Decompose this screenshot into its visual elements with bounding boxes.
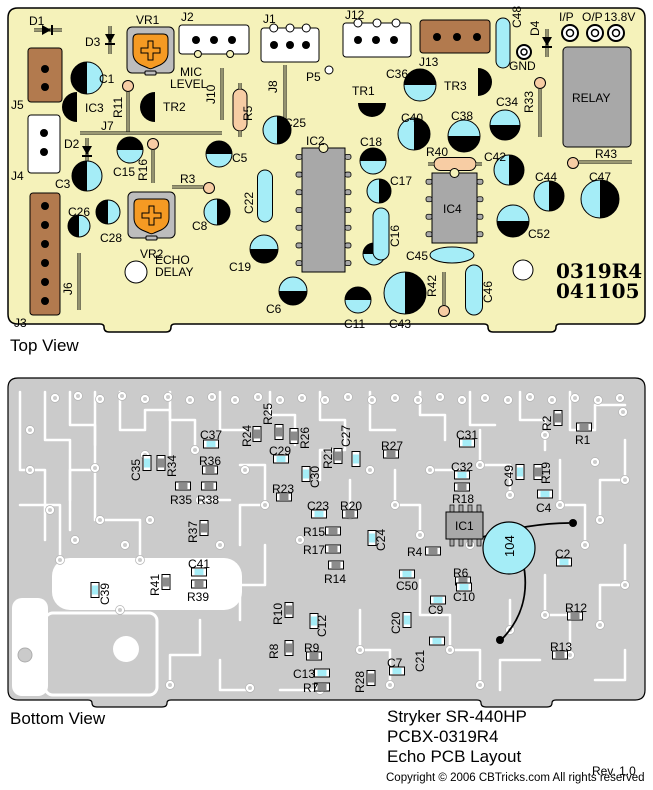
pad-hole xyxy=(278,398,282,402)
label-C39: C39 xyxy=(98,583,112,605)
label-P5: P5 xyxy=(306,70,321,84)
ic-pin xyxy=(477,214,483,219)
pad-hole xyxy=(120,394,124,398)
label-C38: C38 xyxy=(451,109,473,123)
pad xyxy=(146,516,155,525)
pad xyxy=(416,531,425,540)
label-R17: R17 xyxy=(303,543,325,557)
ic-pin xyxy=(345,261,351,266)
capacitor-band xyxy=(458,472,467,478)
trace-channel xyxy=(595,650,625,680)
resistor-band xyxy=(318,684,327,690)
pad-hole xyxy=(623,583,627,587)
pad-hole xyxy=(138,558,142,562)
bottom-component-C23: C23 xyxy=(307,499,329,518)
trace-channel xyxy=(420,580,480,685)
pad xyxy=(216,541,225,550)
capacitor-band xyxy=(517,468,523,477)
label-R37: R37 xyxy=(186,521,200,543)
pad-hole xyxy=(218,543,222,547)
part-body xyxy=(430,637,445,645)
trimmer-tab xyxy=(146,236,157,240)
top-component-hole xyxy=(513,260,533,280)
pad-hole xyxy=(478,463,482,467)
label-C12: C12 xyxy=(315,615,329,637)
bottom-component-R4: R4 xyxy=(407,545,441,559)
label-C15: C15 xyxy=(113,165,135,179)
bottom-component-R17: R17 xyxy=(303,543,341,557)
part-body xyxy=(455,471,470,479)
pad xyxy=(386,681,395,690)
part-body xyxy=(192,568,207,576)
footer-copyright: Copyright © 2006 CBTricks.com All rights… xyxy=(386,772,645,784)
pad-hole xyxy=(358,648,362,652)
part-body xyxy=(277,493,292,501)
label-C29: C29 xyxy=(269,444,291,458)
pad-hole xyxy=(550,398,554,402)
capacitor-band xyxy=(318,670,327,676)
label-C3: C3 xyxy=(55,177,71,191)
label-C17: C17 xyxy=(390,174,412,188)
bottom-component-R38: R38 xyxy=(197,482,219,507)
trace-channel xyxy=(520,392,545,450)
label-R11: R11 xyxy=(111,97,125,118)
pad xyxy=(74,392,83,401)
bottom-component-R28: R28 xyxy=(353,671,375,694)
label-C34: C34 xyxy=(496,95,518,109)
pad-hole xyxy=(618,396,622,400)
bottom-component-R14: R14 xyxy=(324,561,346,586)
label-R42: R42 xyxy=(425,275,439,297)
ic-pin xyxy=(477,232,483,237)
connector-pin xyxy=(192,36,200,44)
label-GND: GND xyxy=(509,59,536,73)
terminal-hole xyxy=(567,30,574,37)
bottom-component-C49: C49 xyxy=(502,465,524,488)
bottom-component-R23: R23 xyxy=(272,482,294,501)
pad-hole xyxy=(123,543,127,547)
part-body xyxy=(203,466,218,474)
part-body xyxy=(456,577,471,585)
part-body xyxy=(315,683,330,691)
pad xyxy=(231,396,240,405)
trace-channel xyxy=(395,470,420,535)
bottom-component-C24: C24 xyxy=(368,529,388,551)
pad-hole xyxy=(583,543,587,547)
label-R14: R14 xyxy=(324,572,346,586)
part-body xyxy=(302,467,310,482)
pad-hole xyxy=(168,683,172,687)
pad xyxy=(581,541,590,550)
resistor-band xyxy=(286,606,292,615)
label-C46: C46 xyxy=(481,281,495,303)
part-body xyxy=(384,450,399,458)
trace-channel xyxy=(420,392,445,440)
pad-hole xyxy=(143,453,147,457)
label-C43: C43 xyxy=(389,317,411,331)
top-component-C45: C45 xyxy=(406,247,474,263)
pad xyxy=(276,396,285,405)
pad xyxy=(476,681,485,690)
ic-pin xyxy=(426,214,432,219)
label-R23: R23 xyxy=(272,482,294,496)
ic-pin xyxy=(345,154,351,159)
resistor-band xyxy=(276,428,282,437)
pad-hole xyxy=(418,533,422,537)
label-R28: R28 xyxy=(353,671,367,693)
capacitor-band xyxy=(369,534,375,543)
trace-channel xyxy=(20,505,120,560)
part-body xyxy=(568,612,583,620)
pad xyxy=(391,501,400,510)
connector-pin xyxy=(41,221,49,229)
label-C2: C2 xyxy=(555,547,571,561)
capacitor-band xyxy=(195,569,204,575)
trace-channel xyxy=(370,392,395,430)
pad xyxy=(458,396,467,405)
cap-pill xyxy=(373,208,389,260)
label-C47: C47 xyxy=(589,170,611,184)
label-C24: C24 xyxy=(374,529,388,551)
part-body xyxy=(577,423,592,431)
pad-hole xyxy=(323,398,327,402)
pad xyxy=(321,396,330,405)
jumper-dot xyxy=(496,636,504,644)
pad xyxy=(591,458,600,467)
ic-body xyxy=(446,512,483,539)
part-body xyxy=(455,483,470,491)
resistor-band xyxy=(286,644,292,653)
label-C50: C50 xyxy=(396,579,418,593)
open-region xyxy=(12,598,48,696)
capacitor-band xyxy=(434,597,443,603)
pad xyxy=(368,396,377,405)
label-C31: C31 xyxy=(456,428,478,442)
pad-hole xyxy=(298,538,302,542)
resistor-end xyxy=(568,158,579,169)
label-C35: C35 xyxy=(129,459,143,481)
bottom-component-R26: R26 xyxy=(290,427,312,449)
label-C5: C5 xyxy=(232,151,248,165)
cap104-body xyxy=(483,522,535,574)
part-body xyxy=(274,455,289,463)
ic-pin xyxy=(296,172,302,177)
bottom-component-C9: C9 xyxy=(428,596,446,617)
part-body xyxy=(285,603,293,618)
trace-channel xyxy=(95,470,140,560)
cap-oval xyxy=(430,247,474,263)
bottom-component-R8: R8 xyxy=(267,641,293,660)
resistor-band xyxy=(346,511,355,517)
top-component-ring xyxy=(608,25,624,41)
label-C37: C37 xyxy=(200,428,222,442)
cap-pill xyxy=(496,18,510,68)
trace-channel xyxy=(600,440,625,520)
part-body xyxy=(426,547,441,555)
part-body xyxy=(290,429,298,444)
bottom-component-C30: C30 xyxy=(302,466,322,488)
bottom-component-R7: R7 xyxy=(303,681,330,695)
label-IC4: IC4 xyxy=(443,202,462,216)
part-body xyxy=(431,596,446,604)
label-C27: C27 xyxy=(339,425,353,447)
pad xyxy=(344,393,353,402)
bottom-component-R12: R12 xyxy=(565,601,587,620)
part-body xyxy=(143,456,151,471)
terminal-hole xyxy=(613,30,620,37)
capacitor-band xyxy=(403,571,412,577)
resistor-band xyxy=(556,652,565,658)
part-body xyxy=(400,570,415,578)
ic-pin xyxy=(468,539,472,546)
bottom-component-R24: R24 xyxy=(240,425,261,447)
bottom-component-C29: C29 xyxy=(269,444,291,463)
label-R13: R13 xyxy=(550,640,572,654)
pad-hole xyxy=(468,543,472,547)
part-body xyxy=(200,521,208,536)
part-body xyxy=(253,427,261,442)
bottom-component-R37: R37 xyxy=(186,521,208,544)
label-041105: 041105 xyxy=(556,279,640,303)
label-VR1: VR1 xyxy=(136,13,160,27)
pad-hole xyxy=(76,394,80,398)
label-J5: J5 xyxy=(11,98,24,112)
jumper-wire xyxy=(503,562,525,638)
bottom-component-R13: R13 xyxy=(550,640,572,659)
connector-scallop xyxy=(302,24,310,32)
ic-pin xyxy=(426,232,432,237)
pad xyxy=(186,396,195,405)
pad-hole xyxy=(478,683,482,687)
part-body xyxy=(312,510,327,518)
pad xyxy=(346,511,355,520)
pad-hole xyxy=(256,395,260,399)
top-view-caption: Top View xyxy=(10,336,79,356)
trace-channel xyxy=(570,392,625,430)
label-C7: C7 xyxy=(387,656,403,670)
pad xyxy=(96,395,105,404)
pad xyxy=(136,556,145,565)
capacitor-band xyxy=(277,456,286,462)
pad xyxy=(26,426,35,435)
label-R19: R19 xyxy=(539,462,553,484)
bottom-component-C35: C35 xyxy=(129,456,151,482)
resistor-band xyxy=(195,581,204,587)
resistor-band xyxy=(458,484,467,490)
bottom-component-C39: C39 xyxy=(91,583,112,606)
part-body xyxy=(326,545,341,553)
connector-scallop xyxy=(286,24,294,32)
ic-pin xyxy=(296,208,302,213)
pad xyxy=(208,393,217,402)
connector-pin xyxy=(210,36,218,44)
pad-hole xyxy=(348,513,352,517)
pad xyxy=(356,646,365,655)
pad xyxy=(596,621,605,630)
trace-channel xyxy=(20,392,45,540)
label-C30: C30 xyxy=(308,466,322,488)
trace-channel xyxy=(500,660,540,690)
footer-layout-title: Echo PCB Layout xyxy=(387,747,521,767)
pad xyxy=(566,651,575,660)
label-C44: C44 xyxy=(535,170,557,184)
resistor-band xyxy=(280,494,289,500)
pad-hole xyxy=(28,468,32,472)
bottom-component-R10: R10 xyxy=(271,603,293,626)
pad xyxy=(166,681,175,690)
trace-channel xyxy=(220,660,250,690)
ic-notch xyxy=(450,169,459,178)
label-C25: C25 xyxy=(284,116,306,130)
resistor-band xyxy=(158,459,164,468)
top-component-ring xyxy=(562,25,578,41)
footer-pcb-number: PCBX-0319R4 xyxy=(387,727,499,747)
label-C11: C11 xyxy=(344,317,365,331)
pad xyxy=(118,392,127,401)
connector-pin xyxy=(40,148,48,156)
pad xyxy=(621,581,630,590)
label-I/P: I/P xyxy=(559,10,574,24)
label-R8: R8 xyxy=(267,643,281,659)
pad xyxy=(26,466,35,475)
label-R4: R4 xyxy=(407,545,423,559)
footer-model: Stryker SR-440HP xyxy=(387,707,527,727)
pad xyxy=(391,394,400,403)
trace-channel xyxy=(470,392,495,425)
label-IC2: IC2 xyxy=(306,134,325,148)
part-body xyxy=(352,452,360,467)
resistor-band xyxy=(580,424,589,430)
trace-channel xyxy=(45,392,70,500)
resistor-band xyxy=(179,483,188,489)
part-body xyxy=(343,510,358,518)
part-body xyxy=(538,490,553,498)
part-body xyxy=(554,411,562,426)
label-O/P: O/P xyxy=(582,10,603,24)
pad-hole xyxy=(393,503,397,507)
label-R36: R36 xyxy=(199,454,221,468)
label-C6: C6 xyxy=(266,302,282,316)
pad-hole xyxy=(428,468,432,472)
trace-channel xyxy=(560,460,585,545)
ic-pin xyxy=(426,179,432,184)
part-body xyxy=(285,641,293,656)
pad-hole xyxy=(621,410,625,414)
part-body xyxy=(334,449,342,464)
component-IC1: IC1 xyxy=(446,505,483,546)
resistor-band xyxy=(555,414,561,423)
pad xyxy=(91,464,100,473)
connector-pin xyxy=(41,259,49,267)
pad xyxy=(164,393,173,402)
ic-pin xyxy=(345,172,351,177)
bottom-component-R41: R41 xyxy=(148,574,170,596)
connector-scallop xyxy=(392,19,400,27)
label-C40: C40 xyxy=(401,111,423,125)
bottom-component-R20: R20 xyxy=(340,499,362,518)
top-component-IC2: IC2 xyxy=(296,134,351,272)
bottom-component-C50: C50 xyxy=(396,570,418,593)
label-C9: C9 xyxy=(428,603,444,617)
bottom-component-C13: C13 xyxy=(293,667,330,681)
pad xyxy=(254,393,263,402)
trace-channel xyxy=(360,610,390,685)
connector-body xyxy=(28,115,60,173)
pad-hole xyxy=(460,398,464,402)
bottom-board-outline xyxy=(8,378,645,707)
resistor-band xyxy=(291,432,297,441)
connector-body xyxy=(28,48,62,102)
label-C13: C13 xyxy=(293,667,315,681)
bottom-component-R9: R9 xyxy=(304,641,322,660)
label-C4: C4 xyxy=(536,501,552,515)
pad xyxy=(506,626,515,635)
part-body xyxy=(202,482,217,490)
connector-scallop xyxy=(373,19,381,27)
pad xyxy=(141,451,150,460)
bottom-component-C7: C7 xyxy=(387,656,405,675)
ic-pin xyxy=(477,539,481,546)
capacitor-band xyxy=(433,638,442,644)
label-104: 104 xyxy=(502,535,517,557)
label-C21: C21 xyxy=(413,650,427,672)
connector-pin xyxy=(41,297,49,305)
bottom-component-C32: C32 xyxy=(451,460,473,479)
connector-notch xyxy=(227,51,234,58)
label-C18: C18 xyxy=(360,135,382,149)
capacitor-band xyxy=(393,668,402,674)
label-C49: C49 xyxy=(502,465,516,487)
pad xyxy=(541,431,550,440)
capacitor-band xyxy=(311,617,317,626)
pad xyxy=(191,446,200,455)
bottom-component-C4: C4 xyxy=(536,490,553,515)
label-J7: J7 xyxy=(101,119,114,133)
connector-notch xyxy=(194,51,201,58)
pad xyxy=(476,461,485,470)
pad-island xyxy=(18,648,32,662)
pad-hole xyxy=(248,686,252,690)
label-C20: C20 xyxy=(389,612,403,634)
label-C22: C22 xyxy=(242,192,256,214)
label-R38: R38 xyxy=(197,493,219,507)
connector-pin xyxy=(41,65,49,73)
gnd-hole xyxy=(521,49,527,55)
trace-channel xyxy=(170,620,200,685)
label-R6: R6 xyxy=(453,566,469,580)
ic-body xyxy=(302,148,345,272)
pad-hole xyxy=(210,395,214,399)
bottom-component-R25: R25 xyxy=(261,403,283,440)
resistor-band xyxy=(459,578,468,584)
ic-pin xyxy=(296,261,302,266)
resistor-band xyxy=(205,483,214,489)
label-R39: R39 xyxy=(187,590,209,604)
pad-hole xyxy=(73,538,77,542)
ic-pin xyxy=(296,154,302,159)
bottom-view-caption: Bottom View xyxy=(10,709,105,729)
ic-pin xyxy=(296,225,302,230)
pad-hole xyxy=(53,396,57,400)
label-IC1: IC1 xyxy=(455,519,474,533)
pad xyxy=(596,516,605,525)
bottom-component-C31: C31 xyxy=(456,428,478,447)
top-view-drawing: D1D3D2D4VR1VR2J2J1J12J13J5J4J3C48RELAYC1… xyxy=(0,0,653,376)
label-DELAY: DELAY xyxy=(155,265,193,279)
label-R24: R24 xyxy=(240,425,254,447)
resistor-band xyxy=(332,562,341,568)
bottom-component-R36: R36 xyxy=(199,454,221,474)
